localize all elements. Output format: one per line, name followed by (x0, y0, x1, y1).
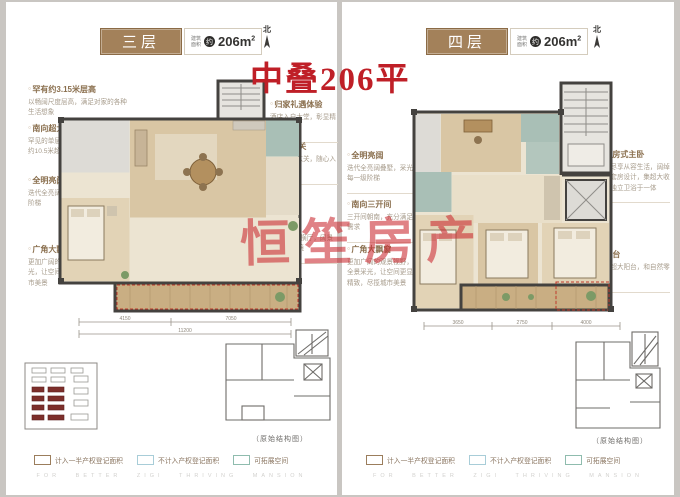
north-indicator: 北 (592, 24, 602, 50)
compass-needle-icon (592, 35, 602, 50)
watermark-agency: 恒笙房产 (239, 200, 488, 276)
legend-item-excluded: 不计入产权登记面积 (137, 455, 219, 465)
structure-drawing-3 (218, 328, 342, 432)
legend-item-expandable: 可拓展空间 (233, 455, 288, 465)
structure-caption: （原始结构图） (218, 434, 342, 444)
compass-needle-icon (262, 35, 272, 50)
legend: 计入一半产权登记面积 不计入产权登记面积 可拓展空间 (366, 455, 620, 465)
area-caption: 建筑面积 (191, 36, 201, 48)
svg-text:4000: 4000 (580, 320, 591, 326)
floor-label-4-text: 四层 (448, 31, 486, 52)
legend-item-half: 计入一半产权登记面积 (366, 455, 455, 465)
area-box: 建筑面积 约 206m2 (184, 28, 262, 55)
headline-red: 中叠206平 (250, 52, 411, 100)
approx-badge: 约 (204, 36, 215, 47)
legend-swatch-excluded (469, 455, 486, 465)
floor-label-3: 三层 (100, 28, 182, 55)
svg-text:4150: 4150 (119, 316, 130, 322)
legend-swatch-half (366, 455, 383, 465)
area-value: 206m2 (544, 34, 581, 49)
tagline: FOR BETTER ZIGI THRIVING MANSION (342, 473, 674, 479)
area-caption: 建筑面积 (517, 36, 527, 48)
structure-drawing-4 (570, 330, 670, 434)
approx-badge: 约 (530, 36, 541, 47)
floor-label-4: 四层 (426, 28, 508, 55)
svg-text:7050: 7050 (225, 316, 236, 322)
structure-caption: （原始结构图） (570, 436, 670, 446)
area-value: 206m2 (218, 34, 255, 49)
svg-text:3650: 3650 (452, 320, 463, 326)
floor-plan-3 (55, 78, 305, 318)
legend-item-half: 计入一半产权登记面积 (34, 455, 123, 465)
area-box: 建筑面积 约 206m2 (510, 28, 588, 55)
tagline: FOR BETTER ZIGI THRIVING MANSION (6, 473, 337, 479)
north-label: 北 (592, 24, 602, 35)
legend-item-expandable: 可拓展空间 (565, 455, 620, 465)
site-map (24, 362, 98, 430)
legend-swatch-half (34, 455, 51, 465)
legend: 计入一半产权登记面积 不计入产权登记面积 可拓展空间 (34, 455, 288, 465)
structure-diagram-4: （原始结构图） (570, 330, 670, 446)
legend-swatch-excluded (137, 455, 154, 465)
legend-item-excluded: 不计入产权登记面积 (469, 455, 551, 465)
north-label: 北 (262, 24, 272, 35)
svg-text:11200: 11200 (178, 328, 192, 334)
flyer-page: 三层 建筑面积 约 206m2 北 罕有约3.15米层高 以畅阔尺度层高，满足对… (0, 0, 680, 497)
floor-label-3-text: 三层 (122, 31, 160, 52)
svg-text:2750: 2750 (516, 320, 527, 326)
north-indicator: 北 (262, 24, 272, 50)
structure-diagram-3: （原始结构图） (218, 328, 342, 444)
legend-swatch-expandable (565, 455, 582, 465)
legend-swatch-expandable (233, 455, 250, 465)
